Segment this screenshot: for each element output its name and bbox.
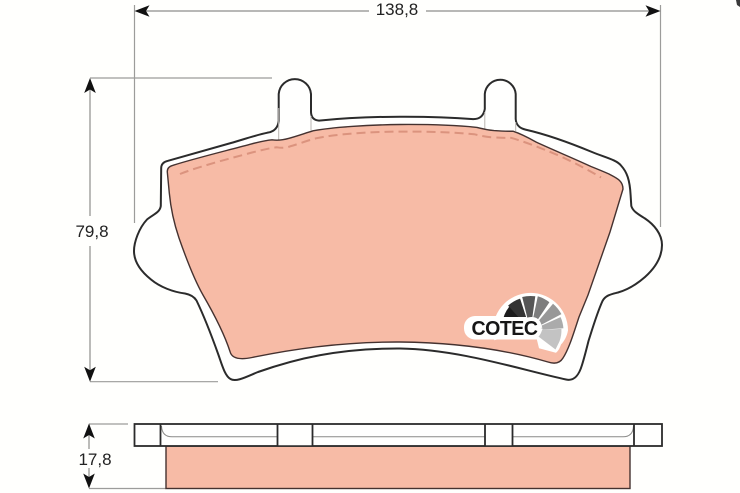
svg-text:17,8: 17,8: [78, 450, 111, 469]
svg-text:138,8: 138,8: [376, 0, 419, 19]
svg-text:COTEC: COTEC: [472, 318, 538, 340]
svg-text:79,8: 79,8: [75, 222, 108, 241]
